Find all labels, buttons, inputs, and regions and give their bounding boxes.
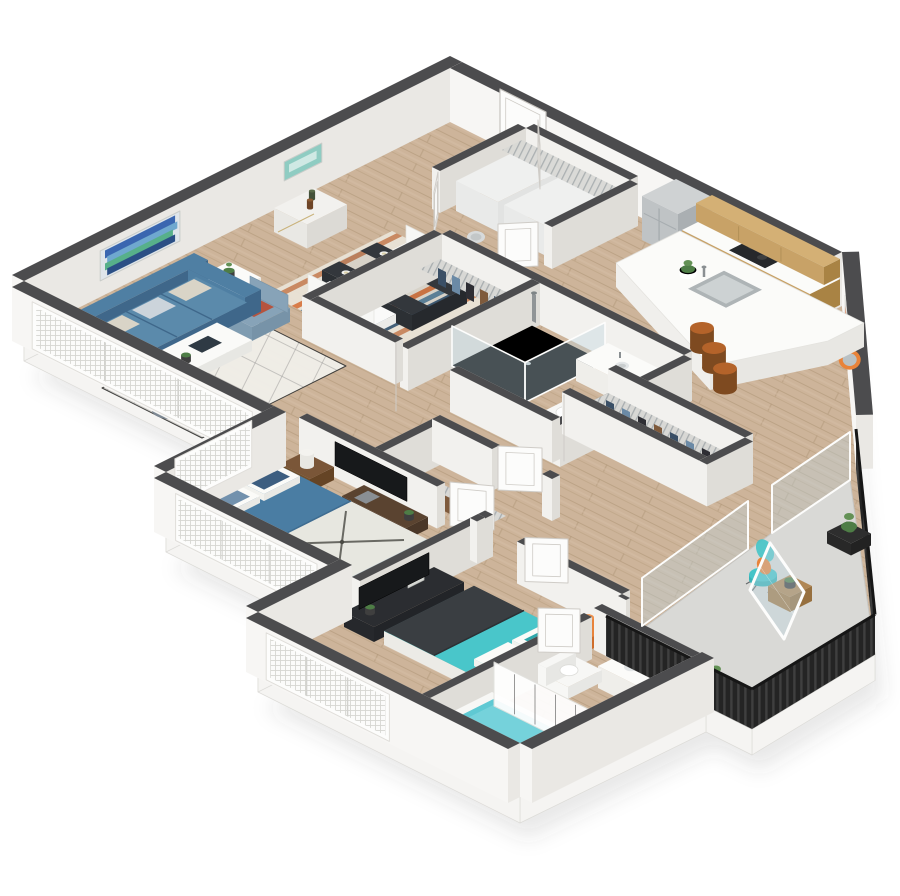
bathroom2-door — [538, 608, 580, 653]
floorplan-3d-render — [0, 0, 900, 896]
floorplan-scene — [0, 0, 900, 896]
bedroom2-door — [525, 538, 568, 584]
